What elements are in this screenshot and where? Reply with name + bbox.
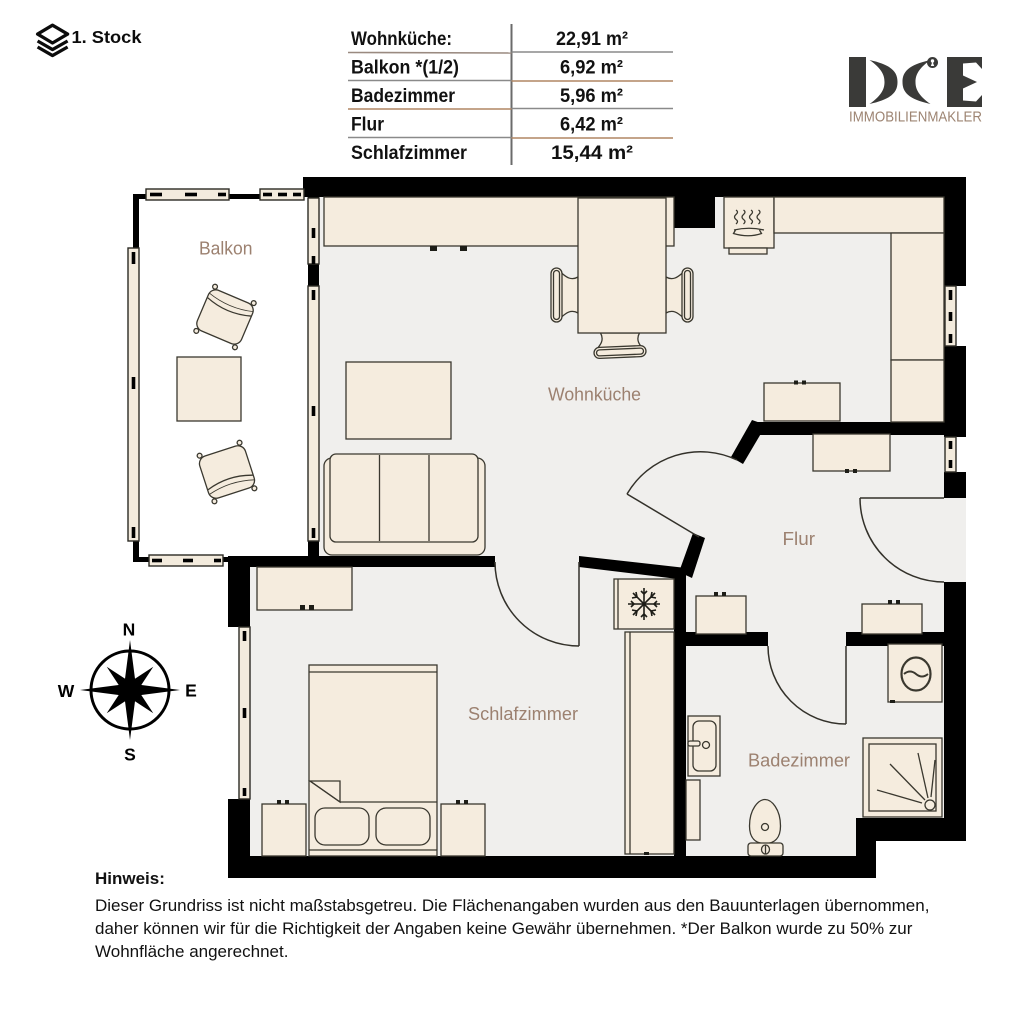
svg-text:Schlafzimmer: Schlafzimmer (351, 142, 467, 164)
svg-text:Dieser Grundriss ist nicht maß: Dieser Grundriss ist nicht maßstabsgetre… (95, 896, 929, 915)
svg-text:E: E (185, 681, 197, 701)
svg-text:Badezimmer: Badezimmer (748, 750, 850, 771)
svg-text:6,42 m²: 6,42 m² (560, 113, 623, 135)
svg-text:Badezimmer: Badezimmer (351, 85, 455, 107)
svg-text:Wohnküche:: Wohnküche: (351, 28, 452, 50)
svg-text:Flur: Flur (783, 528, 816, 549)
svg-text:Wohnküche: Wohnküche (548, 384, 641, 405)
svg-text:Balkon *(1/2): Balkon *(1/2) (351, 57, 459, 79)
svg-text:daher können wir für die Richt: daher können wir für die Richtigkeit der… (95, 919, 913, 938)
svg-text:W: W (58, 681, 75, 701)
svg-text:Schlafzimmer: Schlafzimmer (468, 703, 578, 724)
svg-text:1. Stock: 1. Stock (72, 27, 142, 47)
svg-text:6,92 m²: 6,92 m² (560, 57, 623, 79)
svg-text:Hinweis:: Hinweis: (95, 869, 165, 888)
svg-text:22,91 m²: 22,91 m² (556, 28, 628, 50)
svg-text:15,44 m²: 15,44 m² (551, 142, 634, 164)
svg-text:S: S (124, 745, 136, 765)
svg-text:Balkon: Balkon (199, 238, 253, 259)
svg-text:N: N (123, 620, 136, 640)
svg-text:Wohnfläche angerechnet.: Wohnfläche angerechnet. (95, 942, 288, 961)
svg-text:5,96 m²: 5,96 m² (560, 85, 623, 107)
svg-text:Flur: Flur (351, 113, 384, 135)
svg-text:IMMOBILIENMAKLER: IMMOBILIENMAKLER (849, 110, 982, 126)
